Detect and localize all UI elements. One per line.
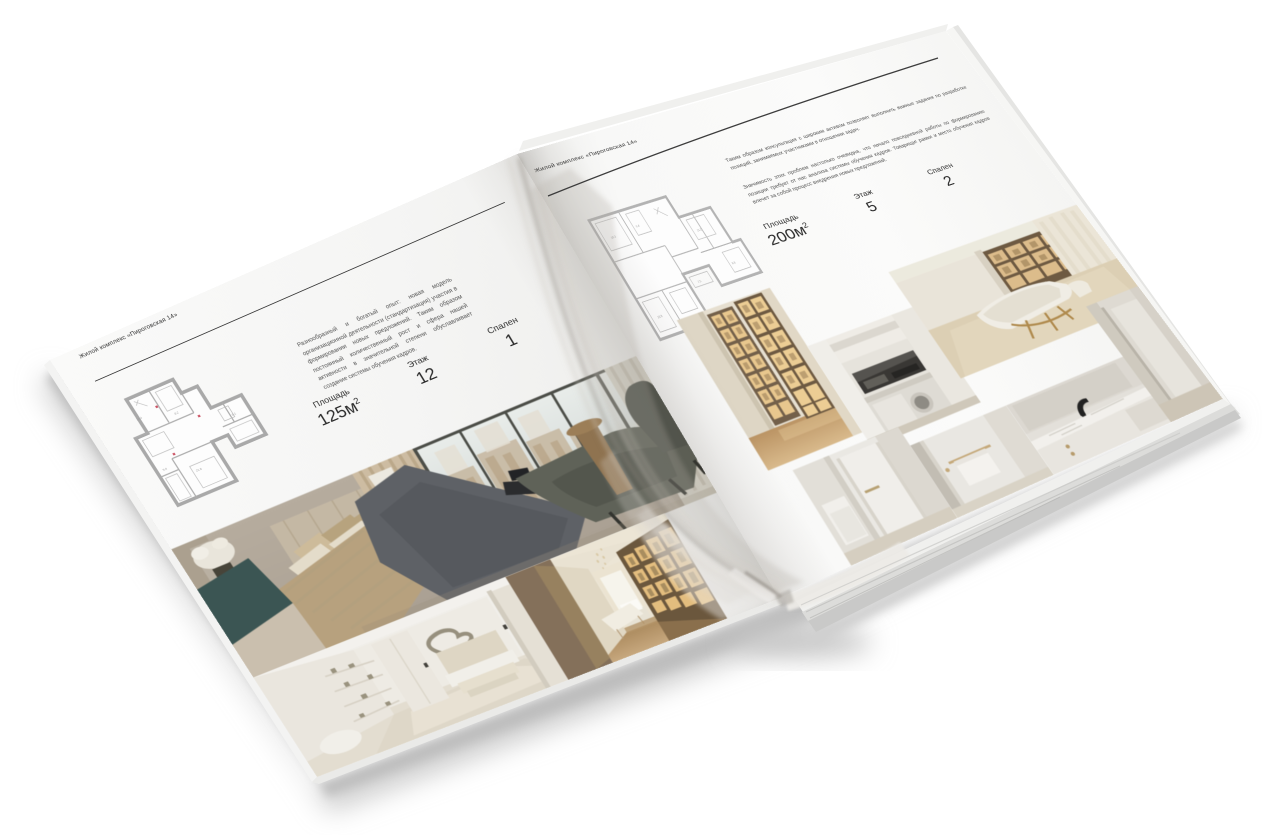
svg-text:7.5: 7.5 <box>696 279 702 284</box>
